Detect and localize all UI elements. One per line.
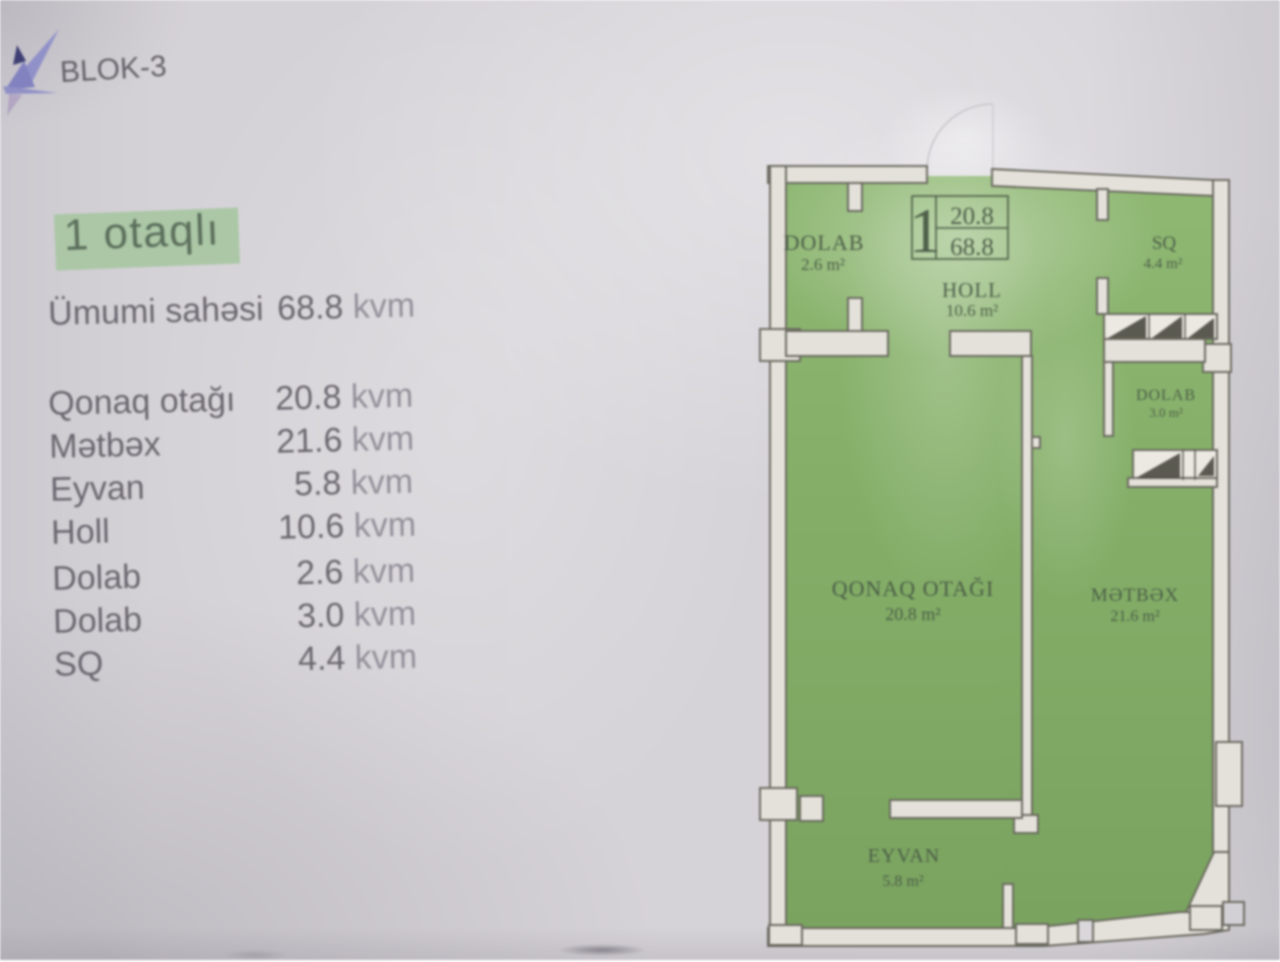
svg-text:HOLL: HOLL xyxy=(942,278,1002,302)
svg-text:3.0 m²: 3.0 m² xyxy=(1149,405,1183,420)
svg-text:4.4 m²: 4.4 m² xyxy=(1144,256,1183,272)
svg-text:SQ: SQ xyxy=(1152,233,1177,254)
svg-text:20.8 m²: 20.8 m² xyxy=(885,604,940,624)
svg-text:20.8: 20.8 xyxy=(950,203,994,230)
svg-text:DOLAB: DOLAB xyxy=(1136,387,1196,404)
svg-text:EYVAN: EYVAN xyxy=(868,845,940,867)
svg-text:2.6 m²: 2.6 m² xyxy=(801,255,845,274)
svg-text:5.8 m²: 5.8 m² xyxy=(882,873,923,890)
svg-text:QONAQ OTAĞI: QONAQ OTAĞI xyxy=(832,576,995,601)
svg-text:68.8: 68.8 xyxy=(950,234,994,261)
svg-text:1: 1 xyxy=(909,195,941,266)
svg-text:10.6 m²: 10.6 m² xyxy=(946,301,998,320)
svg-text:21.6 m²: 21.6 m² xyxy=(1110,608,1159,625)
svg-text:DOLAB: DOLAB xyxy=(784,230,865,255)
svg-text:MƏTBƏX: MƏTBƏX xyxy=(1091,585,1179,606)
